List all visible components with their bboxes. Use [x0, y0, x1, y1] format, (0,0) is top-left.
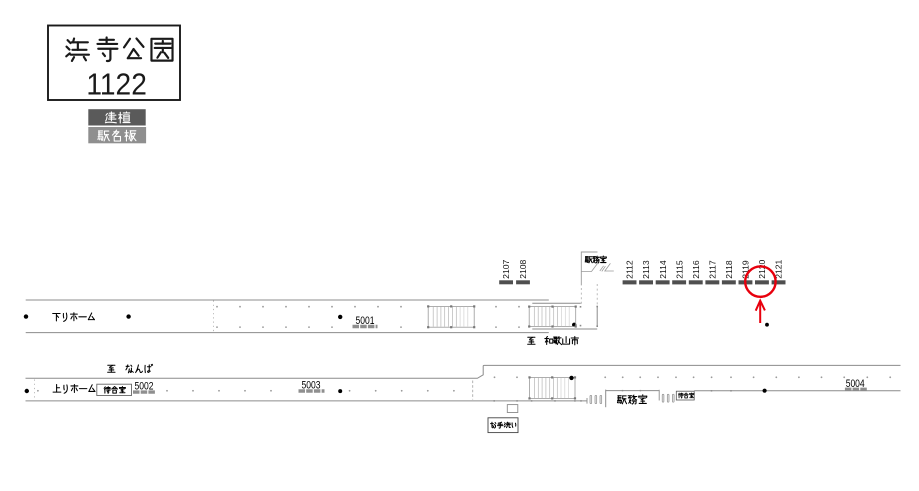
- svg-text:2112: 2112: [625, 260, 635, 279]
- svg-text:2118: 2118: [724, 260, 734, 279]
- svg-text:2120: 2120: [757, 259, 767, 278]
- svg-text:2113: 2113: [641, 260, 651, 279]
- svg-text:2117: 2117: [707, 260, 717, 279]
- svg-text:2107: 2107: [501, 259, 511, 278]
- svg-text:2116: 2116: [691, 260, 701, 279]
- svg-text:1122: 1122: [86, 67, 147, 102]
- svg-text:2114: 2114: [658, 260, 668, 279]
- svg-text:2108: 2108: [518, 259, 528, 278]
- svg-text:2115: 2115: [674, 260, 684, 279]
